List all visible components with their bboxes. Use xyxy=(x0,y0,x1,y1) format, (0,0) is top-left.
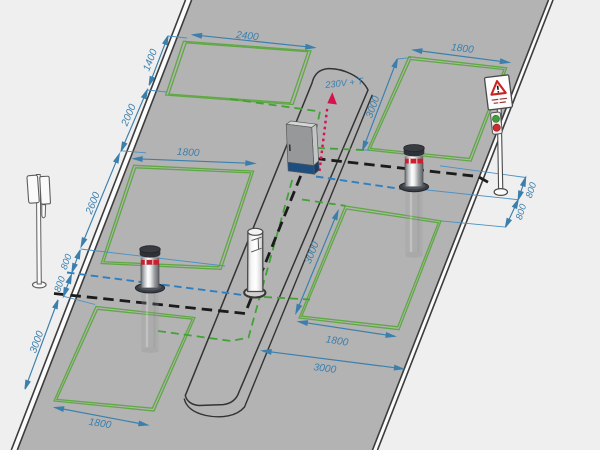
svg-text:1800: 1800 xyxy=(177,147,201,159)
